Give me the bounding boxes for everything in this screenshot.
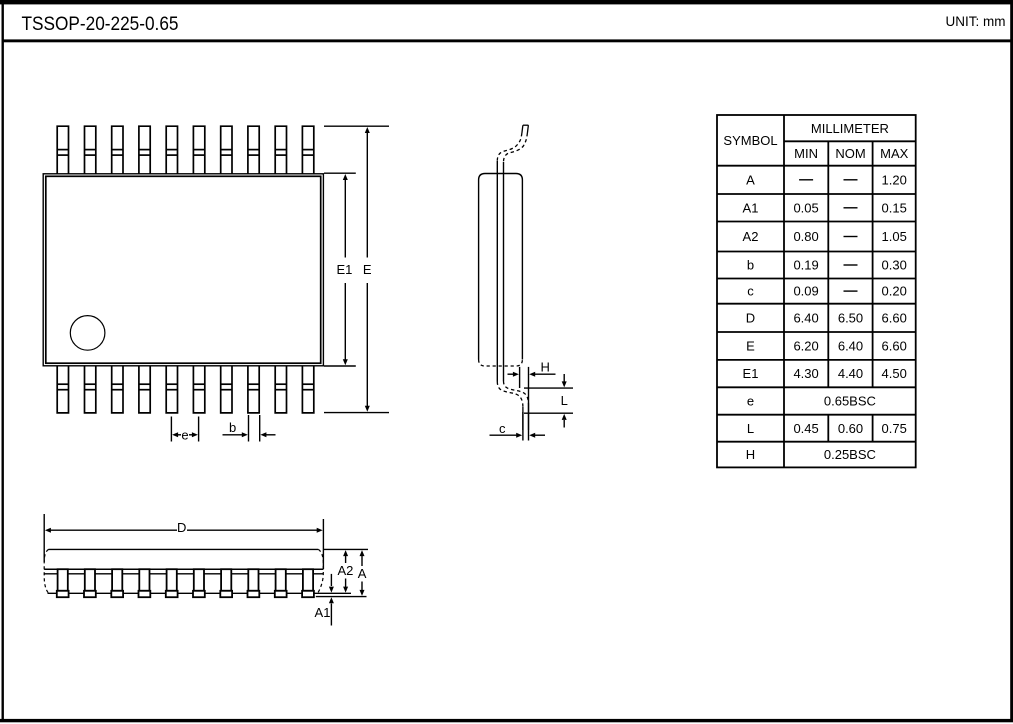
svg-text:0.20: 0.20 — [882, 284, 907, 299]
svg-text:c: c — [747, 284, 754, 299]
svg-text:MIN: MIN — [794, 146, 818, 161]
svg-text:0.65BSC: 0.65BSC — [824, 394, 876, 409]
svg-text:A: A — [746, 172, 755, 187]
svg-text:E1: E1 — [336, 262, 352, 277]
svg-text:0.09: 0.09 — [793, 284, 818, 299]
svg-text:4.30: 4.30 — [793, 366, 818, 381]
svg-text:E: E — [363, 262, 372, 277]
svg-text:c: c — [499, 421, 506, 436]
svg-text:0.75: 0.75 — [882, 421, 907, 436]
svg-text:0.05: 0.05 — [793, 200, 818, 215]
svg-text:TSSOP-20-225-0.65: TSSOP-20-225-0.65 — [22, 13, 179, 35]
svg-text:e: e — [747, 394, 754, 409]
svg-text:4.40: 4.40 — [838, 366, 863, 381]
svg-text:L: L — [561, 393, 568, 408]
svg-text:SYMBOL: SYMBOL — [723, 133, 777, 148]
svg-text:A1: A1 — [743, 200, 759, 215]
svg-text:E1: E1 — [743, 366, 759, 381]
svg-text:0.15: 0.15 — [882, 200, 907, 215]
svg-text:1.20: 1.20 — [882, 172, 907, 187]
svg-text:0.45: 0.45 — [793, 421, 818, 436]
svg-text:4.50: 4.50 — [882, 366, 907, 381]
svg-text:E: E — [746, 339, 755, 354]
svg-text:MILLIMETER: MILLIMETER — [811, 121, 889, 136]
svg-text:b: b — [229, 420, 236, 435]
svg-text:b: b — [747, 258, 754, 273]
svg-text:MAX: MAX — [880, 146, 909, 161]
svg-text:6.60: 6.60 — [882, 339, 907, 354]
svg-text:6.20: 6.20 — [793, 339, 818, 354]
svg-text:D: D — [746, 311, 755, 326]
svg-text:6.50: 6.50 — [838, 311, 863, 326]
svg-text:NOM: NOM — [835, 146, 865, 161]
svg-text:0.19: 0.19 — [793, 258, 818, 273]
svg-text:A: A — [358, 566, 367, 581]
svg-text:A2: A2 — [337, 563, 353, 578]
svg-text:UNIT: mm: UNIT: mm — [946, 14, 1006, 29]
svg-text:A1: A1 — [315, 605, 331, 620]
svg-text:D: D — [177, 520, 186, 535]
svg-text:0.80: 0.80 — [793, 229, 818, 244]
svg-text:6.60: 6.60 — [882, 311, 907, 326]
svg-text:6.40: 6.40 — [838, 339, 863, 354]
svg-text:A2: A2 — [743, 229, 759, 244]
svg-text:1.05: 1.05 — [882, 229, 907, 244]
svg-text:0.30: 0.30 — [882, 258, 907, 273]
svg-text:L: L — [747, 421, 754, 436]
svg-text:6.40: 6.40 — [793, 311, 818, 326]
svg-text:H: H — [746, 447, 755, 462]
svg-text:e: e — [181, 427, 188, 442]
svg-text:0.25BSC: 0.25BSC — [824, 447, 876, 462]
svg-text:H: H — [541, 360, 550, 375]
svg-text:0.60: 0.60 — [838, 421, 863, 436]
